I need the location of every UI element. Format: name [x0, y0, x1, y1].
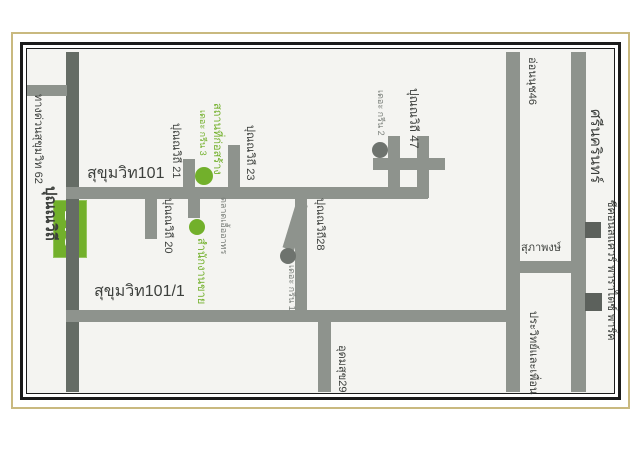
- punnawithi21-stub-road: [183, 159, 195, 189]
- green1-marker: [280, 248, 296, 264]
- punnawithi23-stub-road: [228, 145, 240, 189]
- sukhumvit101-1-label: สุขุมวิท101/1: [94, 284, 185, 301]
- sales-office-marker: [189, 219, 205, 235]
- sukhumvit-main-road: [66, 52, 79, 392]
- sales-office-label: สำนักงานขาย: [194, 238, 206, 304]
- srinakarin-road: [571, 52, 586, 392]
- punnawithi20-stub-road: [145, 198, 157, 239]
- paradise-park-building: [585, 293, 602, 311]
- prawit-label: ประวิทย์และเพื่อน: [526, 311, 538, 395]
- green3-name-label: เดอะ กรีน 3: [198, 110, 207, 156]
- seacon-paradise-label: ซีคอนสแควร์ พาราไดซ์ พาร์ค: [604, 200, 616, 341]
- onnut46-road: [506, 52, 520, 392]
- sukhumvit101-road: [66, 187, 428, 199]
- green2-name-label: เดอะ กรีน 2: [376, 90, 385, 136]
- punnawithi-station-label: ปุณณวิถี: [42, 186, 58, 241]
- sukhumvit101-label: สุขุมวิท101: [87, 166, 164, 183]
- punnawithi21-label: ปุณณวิถี 21: [169, 123, 181, 179]
- map-layer: BTS ทางด่วนสุขุมวิท 62ปุณณวิถีสุขุมวิท10…: [0, 0, 640, 454]
- green3-construction-label: สถานที่ก่อสร้าง: [210, 103, 222, 175]
- map-canvas: BTS ทางด่วนสุขุมวิท 62ปุณณวิถีสุขุมวิท10…: [0, 0, 640, 454]
- punnawithi23-label: ปุณณวิถี 23: [243, 125, 255, 181]
- supaphong-label: สุภาพงษ์: [521, 243, 561, 255]
- punnawithi47-cross-road: [373, 158, 445, 170]
- sukhumvit101-1-road: [66, 310, 520, 322]
- market-label: ตลาดเอื้ออาทร: [219, 197, 228, 254]
- green1-name-label: เดอะ กรีน 1: [287, 265, 296, 311]
- udomsuk29-road: [318, 322, 331, 392]
- expressway-label: ทางด่วนสุขุมวิท 62: [31, 94, 43, 184]
- seacon-square-building: [585, 222, 601, 238]
- srinakarin-label: ศรีนครินทร์: [587, 109, 603, 183]
- sales-office-stub-road: [188, 198, 200, 218]
- punnawithi47-label: ปุณณวิถี 47: [407, 88, 420, 149]
- punnawithi28-label: ปุณณวิถี28: [313, 198, 325, 250]
- punnawithi20-label: ปุณณวิถี 20: [161, 198, 173, 254]
- onnut46-label: อ่อนนุช46: [525, 57, 537, 105]
- supaphong-connector-road: [520, 261, 571, 273]
- green2-marker: [372, 142, 388, 158]
- udomsuk29-label: อุดมสุข29: [335, 345, 347, 392]
